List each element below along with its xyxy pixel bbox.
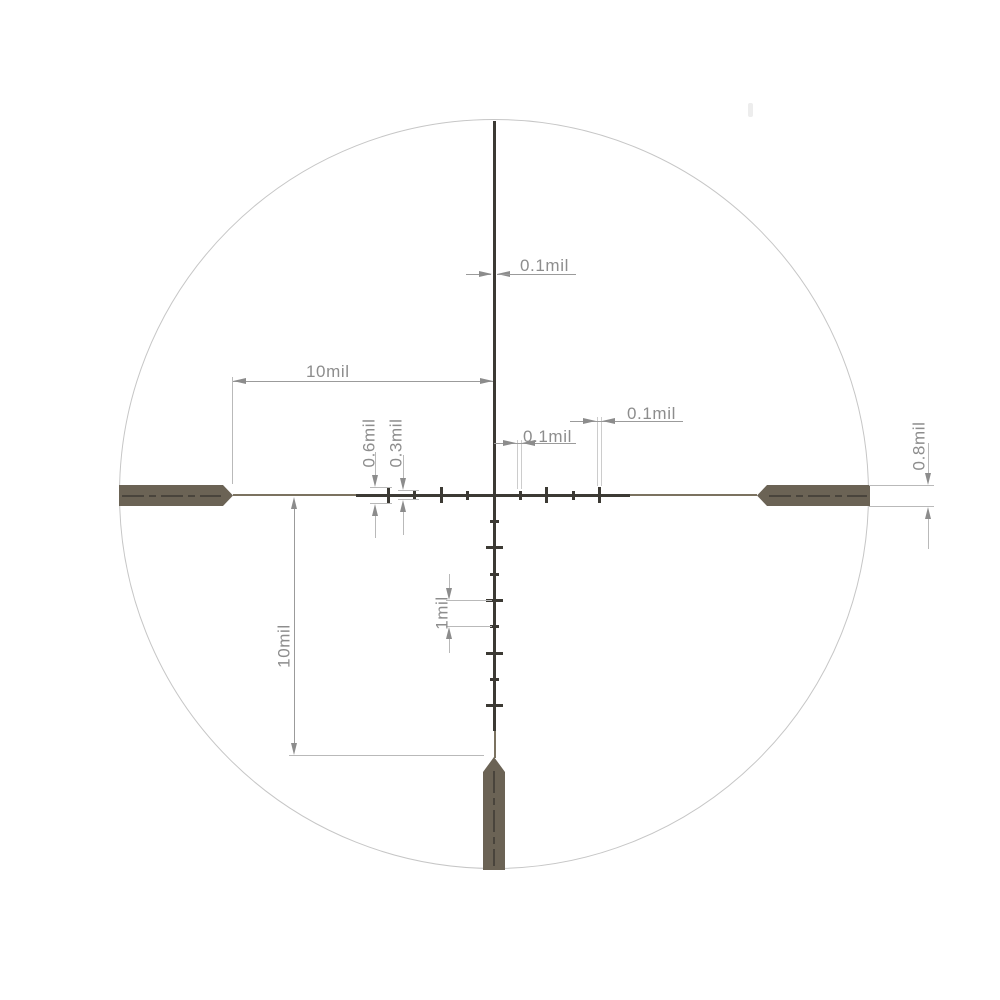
reticle-tick-vertical <box>490 678 499 681</box>
dim-spacing-line-top <box>449 574 450 588</box>
dim-h10-extension <box>232 377 233 484</box>
reticle-tick-vertical <box>490 520 499 523</box>
reticle-tick-horizontal <box>440 487 443 503</box>
dim-shorttick-arrow-up-icon <box>400 500 406 512</box>
dim-outertick-extension-1 <box>597 417 598 486</box>
dim-longtick-arrow-up-icon <box>372 504 378 516</box>
dim-post-extension-top <box>869 485 934 486</box>
dim-innertick-extension-1 <box>517 440 518 489</box>
dim-longtick-line-bottom <box>375 516 376 538</box>
vertical-thin-line-lower <box>494 731 496 758</box>
artifact-mark <box>748 103 753 117</box>
dim-post-line-bottom <box>928 519 929 549</box>
dim-h10-arrow-right-icon <box>480 378 493 384</box>
dim-innertick-extension-2 <box>521 440 522 489</box>
dim-outertick-label: 0.1mil <box>627 405 676 422</box>
right-post <box>757 485 870 506</box>
dim-longtick-arrow-down-icon <box>372 475 378 487</box>
dim-outertick-arrow-left-icon <box>602 418 615 424</box>
dim-h10-label: 10mil <box>306 363 350 380</box>
dim-v10-label: 10mil <box>276 624 293 668</box>
reticle-tick-horizontal <box>519 491 522 500</box>
dim-longtick-extension-top <box>370 487 392 488</box>
dim-outertick-extension-2 <box>601 417 602 486</box>
dim-v10-arrow-down-icon <box>291 743 297 755</box>
dim-spacing-line-bottom <box>449 639 450 653</box>
dim-innertick-arrow-right-icon <box>503 440 516 446</box>
reticle-tick-vertical <box>490 573 499 576</box>
dim-linewidth-arrow-right-icon <box>479 271 492 277</box>
right-post-centerline <box>769 495 867 497</box>
bottom-post <box>483 757 505 870</box>
reticle-diagram: 0.1mil 10mil 0.1mil 0.1mil 0.6mil 0.3mil… <box>0 0 1000 1000</box>
dim-spacing-extension-top <box>446 600 492 601</box>
bottom-post-centerline <box>493 771 495 866</box>
dim-shorttick-arrow-down-icon <box>400 478 406 490</box>
dim-v10-extension-bottom <box>289 755 484 756</box>
dim-post-arrow-up-icon <box>925 507 931 519</box>
left-post-centerline <box>122 495 221 497</box>
reticle-tick-horizontal <box>572 491 575 500</box>
reticle-tick-horizontal <box>598 487 601 503</box>
reticle-tick-horizontal <box>545 487 548 503</box>
left-post <box>119 485 233 506</box>
vertical-crosshair-line <box>493 121 496 731</box>
reticle-tick-vertical <box>486 546 503 549</box>
horizontal-thin-line-right <box>630 494 757 496</box>
dim-shorttick-extension-top <box>398 490 419 491</box>
dim-longtick-label: 0.6mil <box>361 419 378 468</box>
dim-spacing-extension-bottom <box>446 626 492 627</box>
reticle-tick-horizontal <box>466 491 469 500</box>
dim-post-label: 0.8mil <box>911 422 928 471</box>
dim-h10-arrow-left-icon <box>233 378 246 384</box>
dim-h10-line <box>233 381 493 382</box>
dim-v10-line <box>294 509 295 743</box>
dim-outertick-arrow-right-icon <box>583 418 596 424</box>
dim-v10-arrow-up-icon <box>291 497 297 509</box>
dim-shorttick-line-bottom <box>403 512 404 535</box>
reticle-tick-vertical <box>486 652 503 655</box>
reticle-tick-vertical <box>486 704 503 707</box>
reticle-tick-horizontal <box>387 487 390 503</box>
dim-innertick-label: 0.1mil <box>523 428 572 445</box>
dim-shorttick-label: 0.3mil <box>388 419 405 468</box>
horizontal-thin-line-left <box>233 494 356 496</box>
dim-spacing-label: 1mil <box>434 596 451 630</box>
horizontal-crosshair-line <box>356 494 630 497</box>
dim-post-arrow-down-icon <box>925 473 931 485</box>
dim-linewidth-label: 0.1mil <box>520 257 569 274</box>
